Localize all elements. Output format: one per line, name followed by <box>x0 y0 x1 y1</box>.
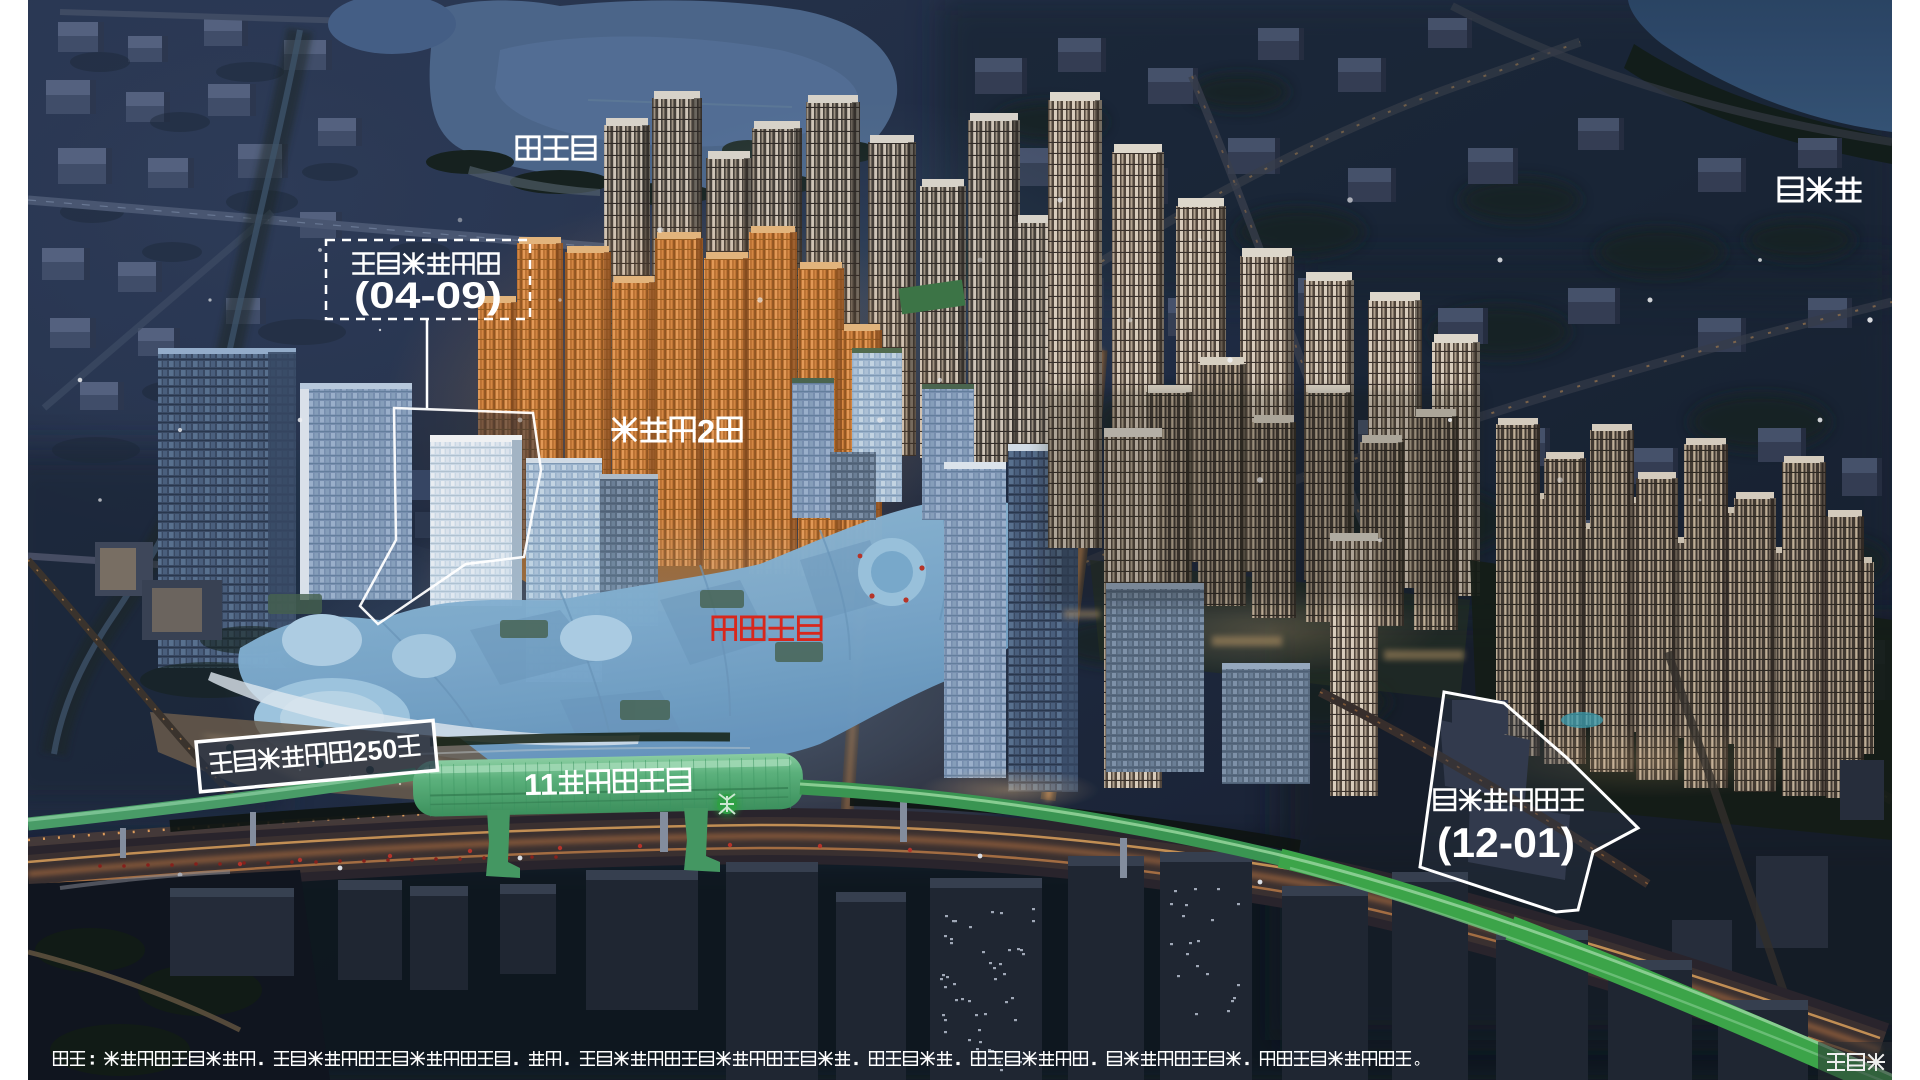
svg-text:250: 250 <box>351 734 398 768</box>
svg-text:2: 2 <box>697 414 715 450</box>
svg-text:(04-09): (04-09) <box>354 275 502 316</box>
svg-text:11: 11 <box>524 768 558 802</box>
svg-text:(12-01): (12-01) <box>1437 819 1575 866</box>
